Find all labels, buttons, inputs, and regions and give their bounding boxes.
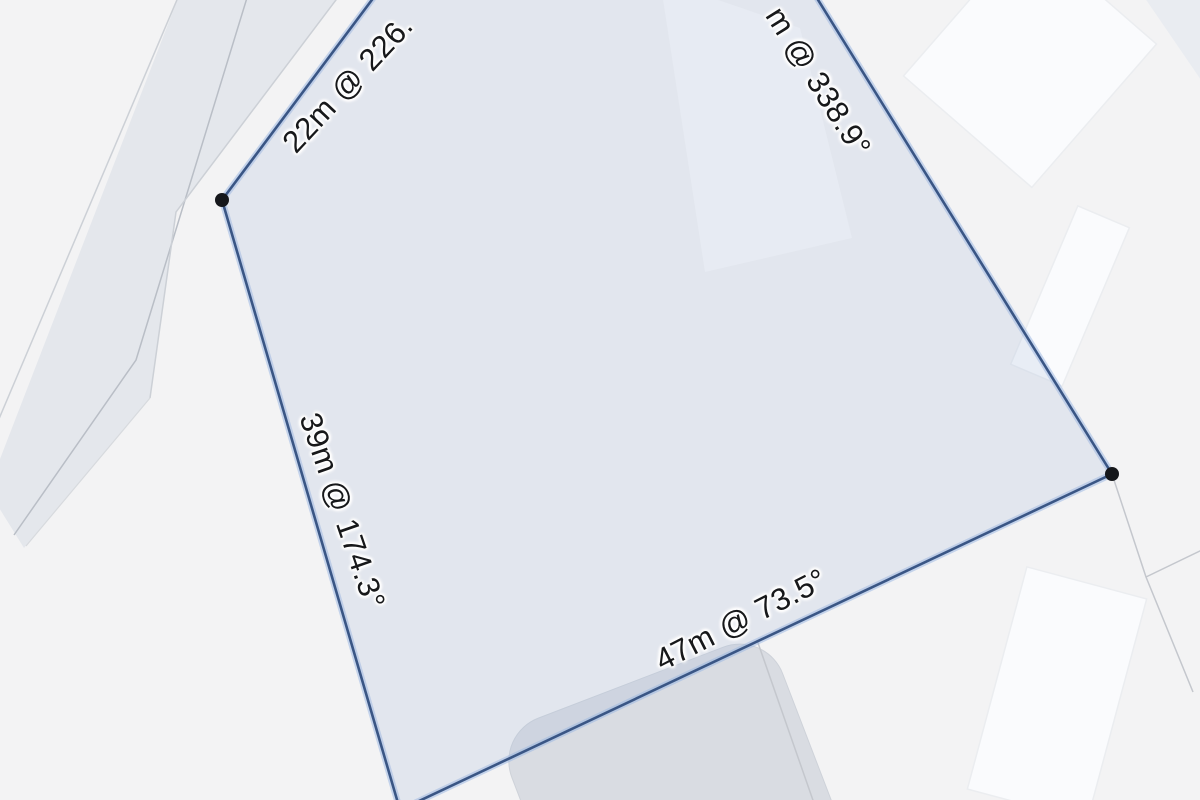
vertex-dot-east[interactable] xyxy=(1105,467,1119,481)
vertex-dot-northwest[interactable] xyxy=(215,193,229,207)
map-canvas[interactable]: 22m @ 226. m @ 338.9° 39m @ 174.3° 47m @… xyxy=(0,0,1200,800)
map-layers xyxy=(0,0,1200,800)
